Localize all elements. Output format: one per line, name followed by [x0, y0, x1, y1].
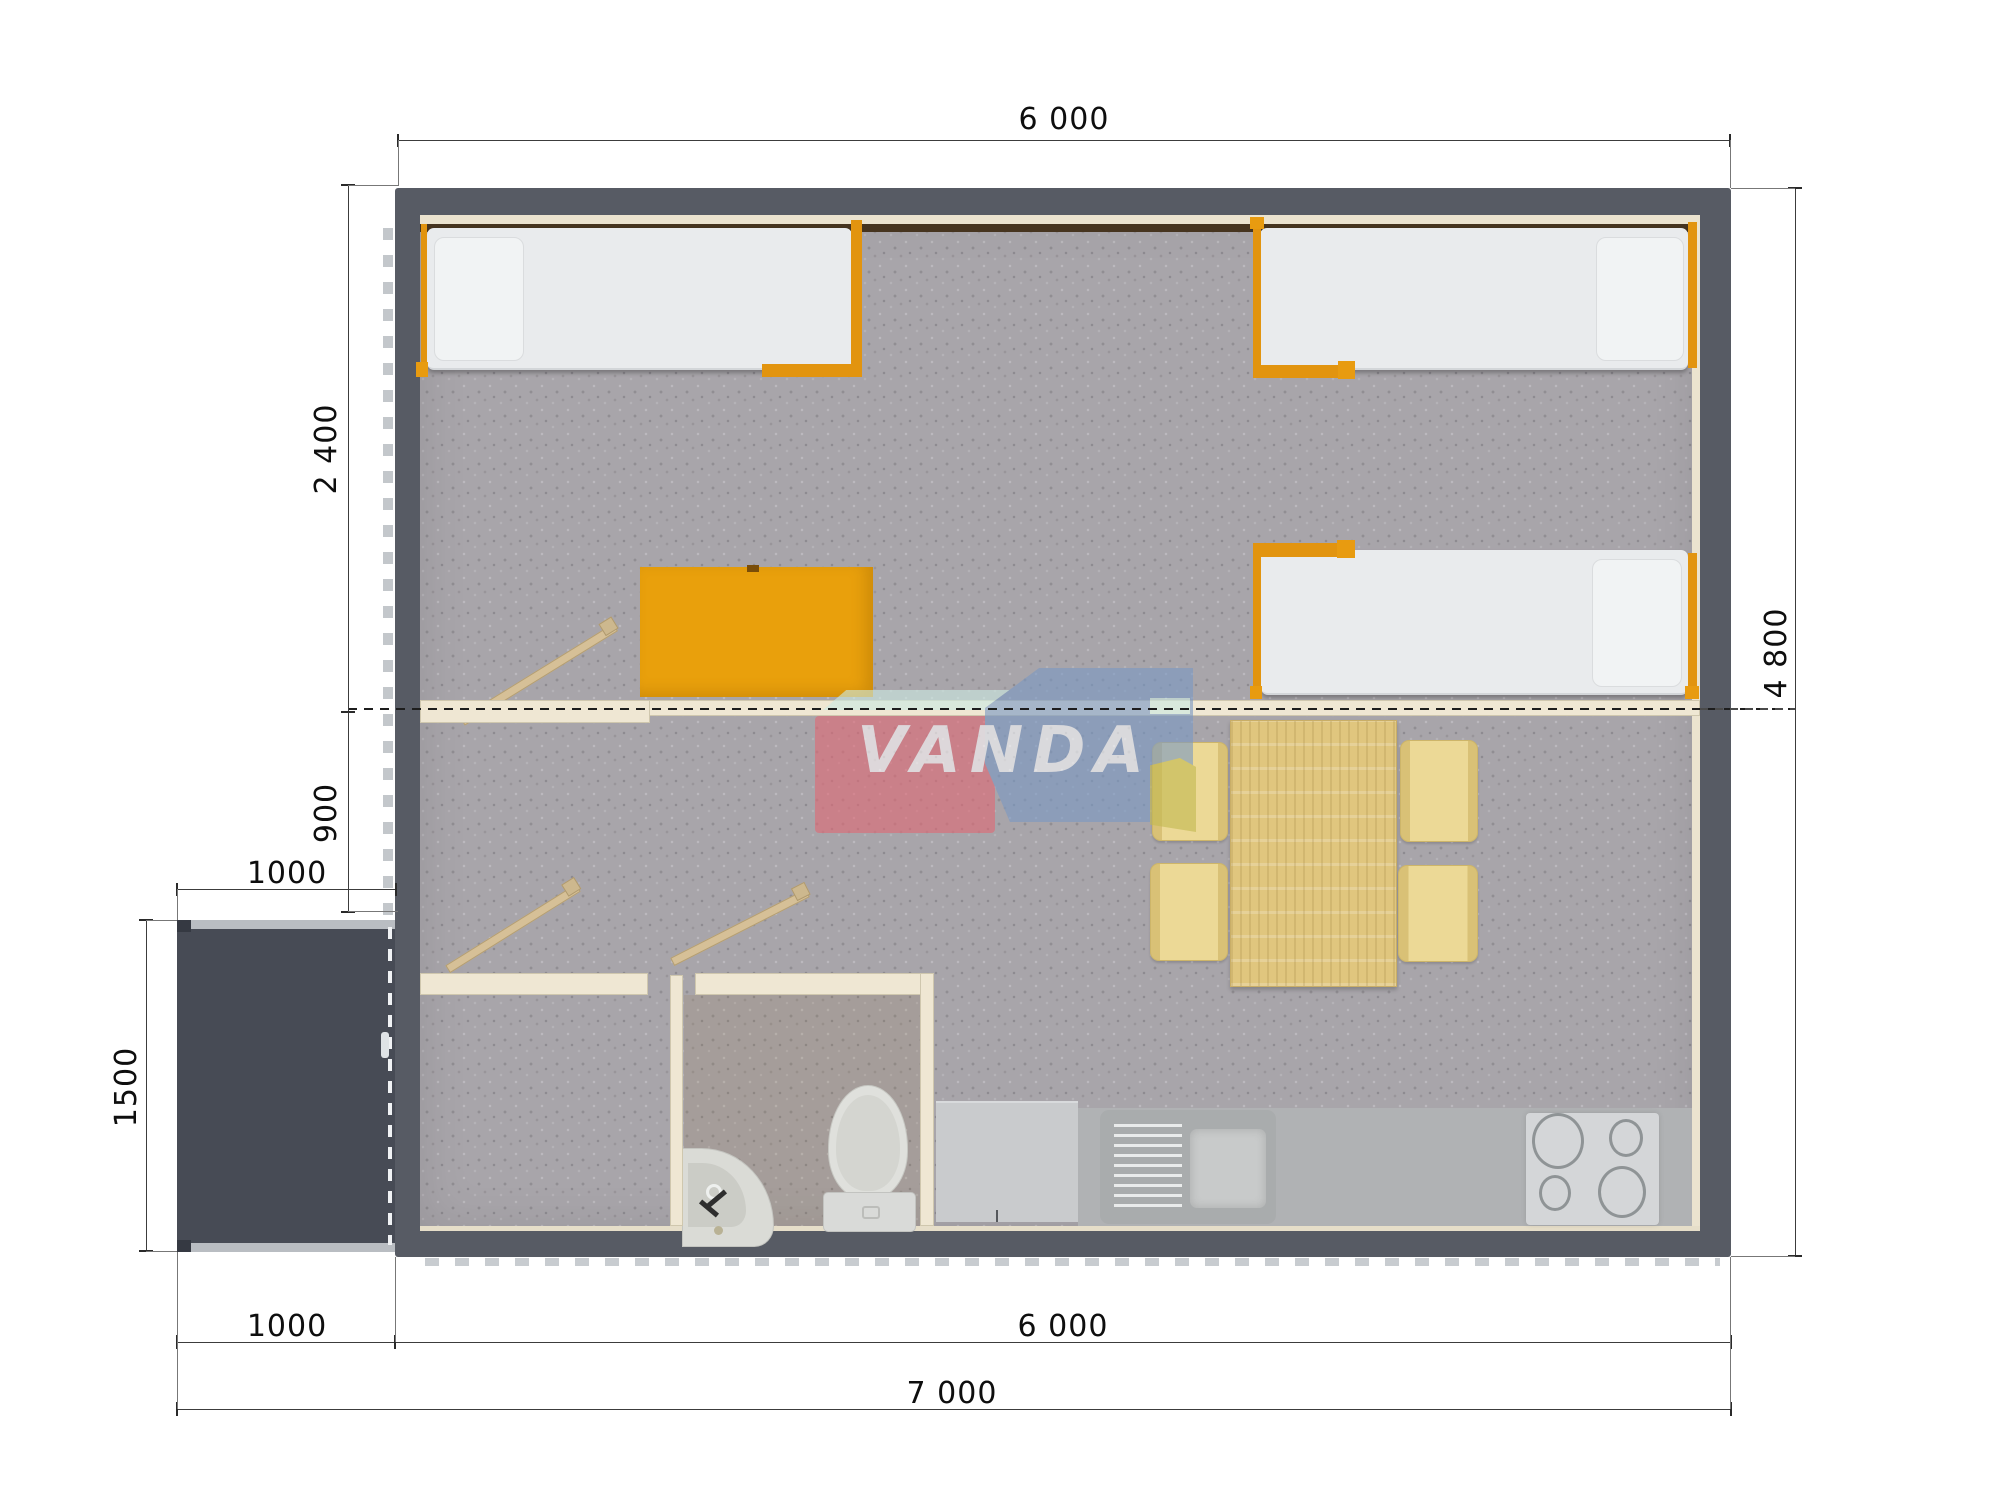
ext-line [1730, 1257, 1731, 1409]
dim-label-porch-width: 1000 [187, 858, 387, 890]
ext-line [1730, 140, 1731, 188]
wc-wall-right [920, 973, 934, 1226]
bed-top-left-corner-tab [416, 362, 428, 377]
chair-bottom-right [1398, 865, 1478, 962]
dim-line-house-depth [1795, 188, 1796, 1257]
stove-burner-small-bl [1539, 1175, 1571, 1211]
dim-label-total-width: 7 000 [852, 1378, 1052, 1410]
ext-line [146, 1251, 177, 1252]
bed-top-right-pillow [1596, 237, 1684, 361]
partition-bath-right [695, 973, 930, 995]
bed-middle-right-corner-tab-left [1250, 686, 1262, 699]
watermark-logo: VANDA [808, 660, 1208, 840]
watermark-text: VANDA [820, 714, 1190, 788]
dim-line-bedroom-depth [348, 185, 349, 712]
stove-burner-small-tr [1609, 1119, 1643, 1157]
bed-top-left-frame-left [421, 224, 427, 368]
top-wall-lining [420, 215, 1700, 224]
bottom-wall-lining [420, 1226, 1700, 1231]
kitchen-cabinet-white [936, 1101, 1078, 1222]
porch-corner-top [177, 920, 191, 932]
toilet-seat [836, 1095, 900, 1191]
ext-line [177, 889, 178, 920]
logo-teal-sliver [1150, 698, 1190, 714]
porch-bottom-strip [191, 1243, 395, 1252]
ext-line [177, 1252, 178, 1409]
toilet-flush-button [862, 1206, 880, 1219]
dim-label-bedroom-depth: 2 400 [311, 379, 343, 519]
bed-middle-right-corner-tab-right [1685, 686, 1699, 699]
door-handle [381, 1032, 389, 1058]
chair-top-right [1400, 740, 1478, 842]
ext-line [348, 911, 398, 912]
wc-wall-left [670, 975, 683, 1226]
kitchen-cabinet-seam [996, 1210, 998, 1222]
bed-middle-right-frame-left [1253, 548, 1261, 695]
bed-top-left-pillow [434, 237, 524, 361]
bed-top-right-frame-left [1253, 222, 1261, 368]
partition-dashed-centerline [348, 708, 1795, 710]
dim-label-bottom-porch-width: 1000 [187, 1311, 387, 1343]
floor-plan-canvas: VANDA 6 000 2 400 900 1000 1500 4 800 10… [0, 0, 2000, 1502]
partition-bedroom-thick-segment [420, 700, 650, 723]
porch-deck [177, 920, 395, 1252]
dim-line-porch-depth [146, 920, 147, 1252]
bed-middle-right-frame-end-tab [1337, 540, 1355, 558]
bottom-cladding-dashes [425, 1258, 1720, 1266]
dim-label-porch-depth: 1500 [111, 1017, 143, 1157]
stove-burner-large-br [1598, 1166, 1646, 1218]
partition-bath-left [420, 973, 648, 995]
orange-cabinet-notch [747, 565, 759, 572]
bed-middle-right-frame-right [1688, 553, 1697, 693]
ext-line [395, 1257, 396, 1342]
tick [395, 883, 397, 896]
dim-line-top-width [398, 140, 1731, 141]
ext-line [146, 920, 177, 921]
stove-burner-large-tl [1532, 1113, 1584, 1169]
dim-label-top-width: 6 000 [964, 104, 1164, 136]
chair-bottom-left [1150, 863, 1228, 961]
bed-middle-right-pillow [1592, 559, 1682, 687]
ext-line [1731, 1256, 1795, 1257]
bed-top-right-corner-tab-top [1250, 217, 1264, 229]
dim-line-bottom-split [177, 1342, 1731, 1343]
washbasin-drain [714, 1226, 723, 1235]
dim-label-house-depth: 4 800 [1761, 583, 1793, 723]
bed-top-left-frame-bottom [762, 364, 853, 377]
porch-top-strip [191, 920, 395, 929]
bed-top-right-frame-bottom [1253, 365, 1351, 378]
dining-table [1230, 720, 1397, 987]
bed-top-left-footboard [851, 220, 862, 377]
entrance-door-dashes [388, 927, 392, 1245]
ext-line [1731, 188, 1795, 189]
bed-top-right-frame-right [1688, 222, 1697, 368]
ext-line [348, 185, 398, 186]
porch-corner-bottom [177, 1240, 191, 1252]
sink-basin [1190, 1129, 1266, 1208]
bed-top-right-frame-end-tab [1338, 361, 1355, 379]
dim-label-bottom-house-width: 6 000 [963, 1311, 1163, 1343]
ext-line [398, 140, 399, 186]
sink-drainboard [1114, 1124, 1182, 1212]
